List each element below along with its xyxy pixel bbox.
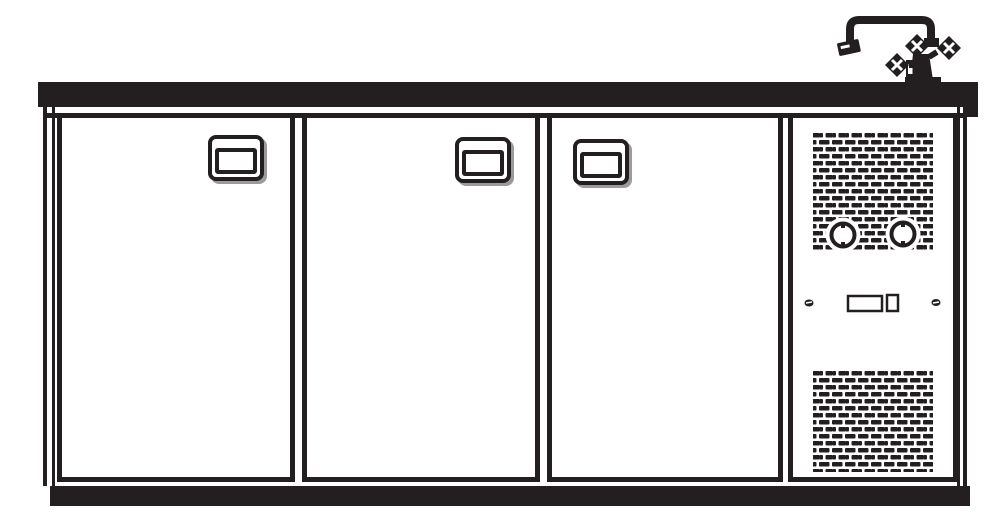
control-switch [848,296,882,311]
door-handle-1 [208,135,264,181]
refrigeration-unit-details [793,118,953,477]
cabinet-right-edge [963,107,967,486]
indicator-light [887,295,898,311]
handle-grip [215,148,257,174]
door-handle-2 [455,137,511,183]
cabinet-left-edge [43,107,47,486]
handle-grip [580,152,622,178]
base-plinth [50,486,970,506]
panel-screw-right-icon [932,299,941,306]
faucet-icon [835,4,965,90]
door-handle-3 [573,139,629,185]
panel-screw-left-icon [805,300,814,307]
thermostat-knob-right [892,221,915,247]
faucet-spout-outlet [837,39,861,56]
cabinet-left-inner-edge [52,107,55,486]
handle-grip [462,150,504,176]
thermostat-knob-left [832,222,855,248]
technical-drawing-canvas [0,0,1000,521]
lower-vent-grille [813,370,933,472]
